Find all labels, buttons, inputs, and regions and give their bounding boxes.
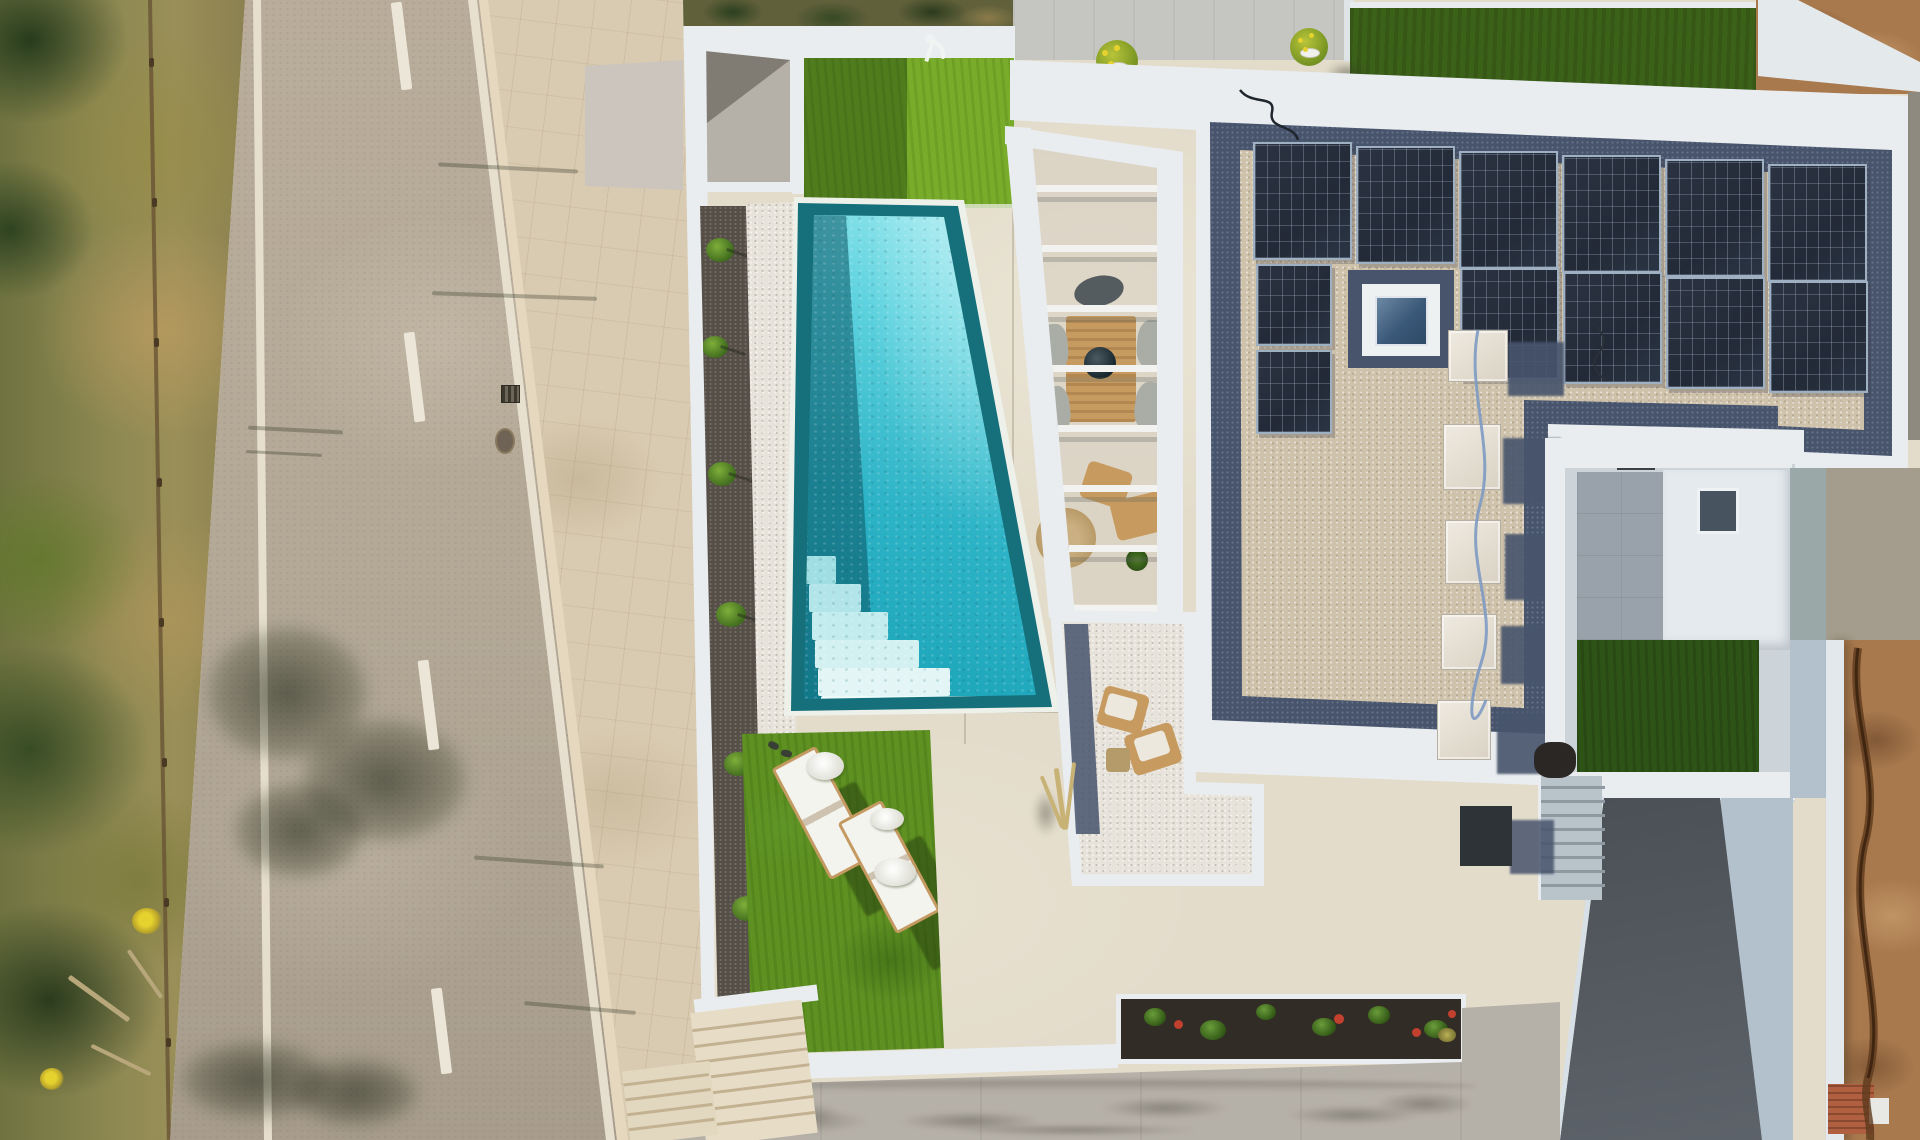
detail-overlay	[0, 0, 1920, 1140]
roof-cable	[1594, 326, 1606, 380]
hvac-cable	[1472, 330, 1487, 719]
shower-pipe	[932, 42, 943, 57]
aerial-photo	[0, 0, 1920, 1140]
roof-cable	[1240, 90, 1298, 140]
